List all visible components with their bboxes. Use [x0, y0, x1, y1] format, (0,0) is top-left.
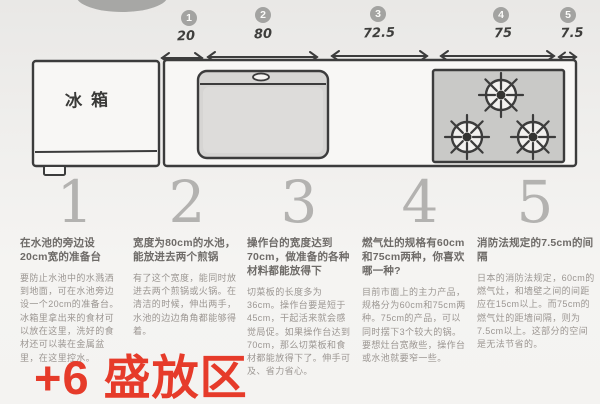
- section-number-4: 4: [390, 170, 450, 234]
- section-column-3: 操作台的宽度达到70cm，做准备的各种材料都能放得下 切菜板的长度多为36cm。…: [247, 237, 355, 379]
- section-number-1: 1: [45, 170, 105, 234]
- fridge-outline: [33, 61, 159, 175]
- gas-stove-icon: [433, 70, 564, 162]
- section-number-5: 5: [505, 170, 565, 234]
- section-heading: 操作台的宽度达到70cm，做准备的各种材料都能放得下: [247, 237, 355, 279]
- section-body: 目前市面上的主力产品，规格分为60cm和75cm两种。75cm的产品，可以同时摆…: [362, 286, 466, 366]
- book-page: 1 2 3 4 5 20 80 72.5 75 7.5: [0, 0, 600, 404]
- section-heading: 在水池的旁边设20cm宽的准备台: [20, 237, 122, 265]
- section-column-2: 宽度为80cm的水池，能放进去两个煎锅 有了这个宽度，能同时放进去两个煎锅或火锅…: [133, 237, 237, 338]
- section-body: 有了这个宽度，能同时放进去两个煎锅或火锅。在清洁的时候，伸出两手，水池的边边角角…: [133, 272, 237, 339]
- section-heading: 消防法规定的7.5cm的间隔: [477, 237, 595, 265]
- section-number-3: 3: [269, 170, 329, 234]
- burner-icon: [511, 115, 555, 159]
- section-column-4: 燃气灶的规格有60cm和75cm两种，你喜欢哪一种? 目前市面上的主力产品，规格…: [362, 237, 466, 365]
- fridge-label: 冰箱: [56, 85, 127, 112]
- section-heading: 宽度为80cm的水池，能放进去两个煎锅: [133, 237, 237, 265]
- section-heading: 燃气灶的规格有60cm和75cm两种，你喜欢哪一种?: [362, 237, 466, 279]
- burner-icon: [445, 115, 489, 159]
- sink-icon: [198, 71, 328, 158]
- section-body: 日本的消防法规定，60cm的燃气灶，和墙壁之间的间距应在15cm以上。而75cm…: [477, 272, 595, 352]
- section-number-2: 2: [157, 170, 217, 234]
- burner-icon: [479, 73, 523, 117]
- section-column-5: 消防法规定的7.5cm的间隔 日本的消防法规定，60cm的燃气灶，和墙壁之间的间…: [477, 237, 595, 352]
- section-body: 切菜板的长度多为36cm。操作台要是短于45cm，干起活来就会感觉局促。如果操作…: [247, 286, 355, 379]
- red-annotation: +6 盛放区: [34, 339, 248, 404]
